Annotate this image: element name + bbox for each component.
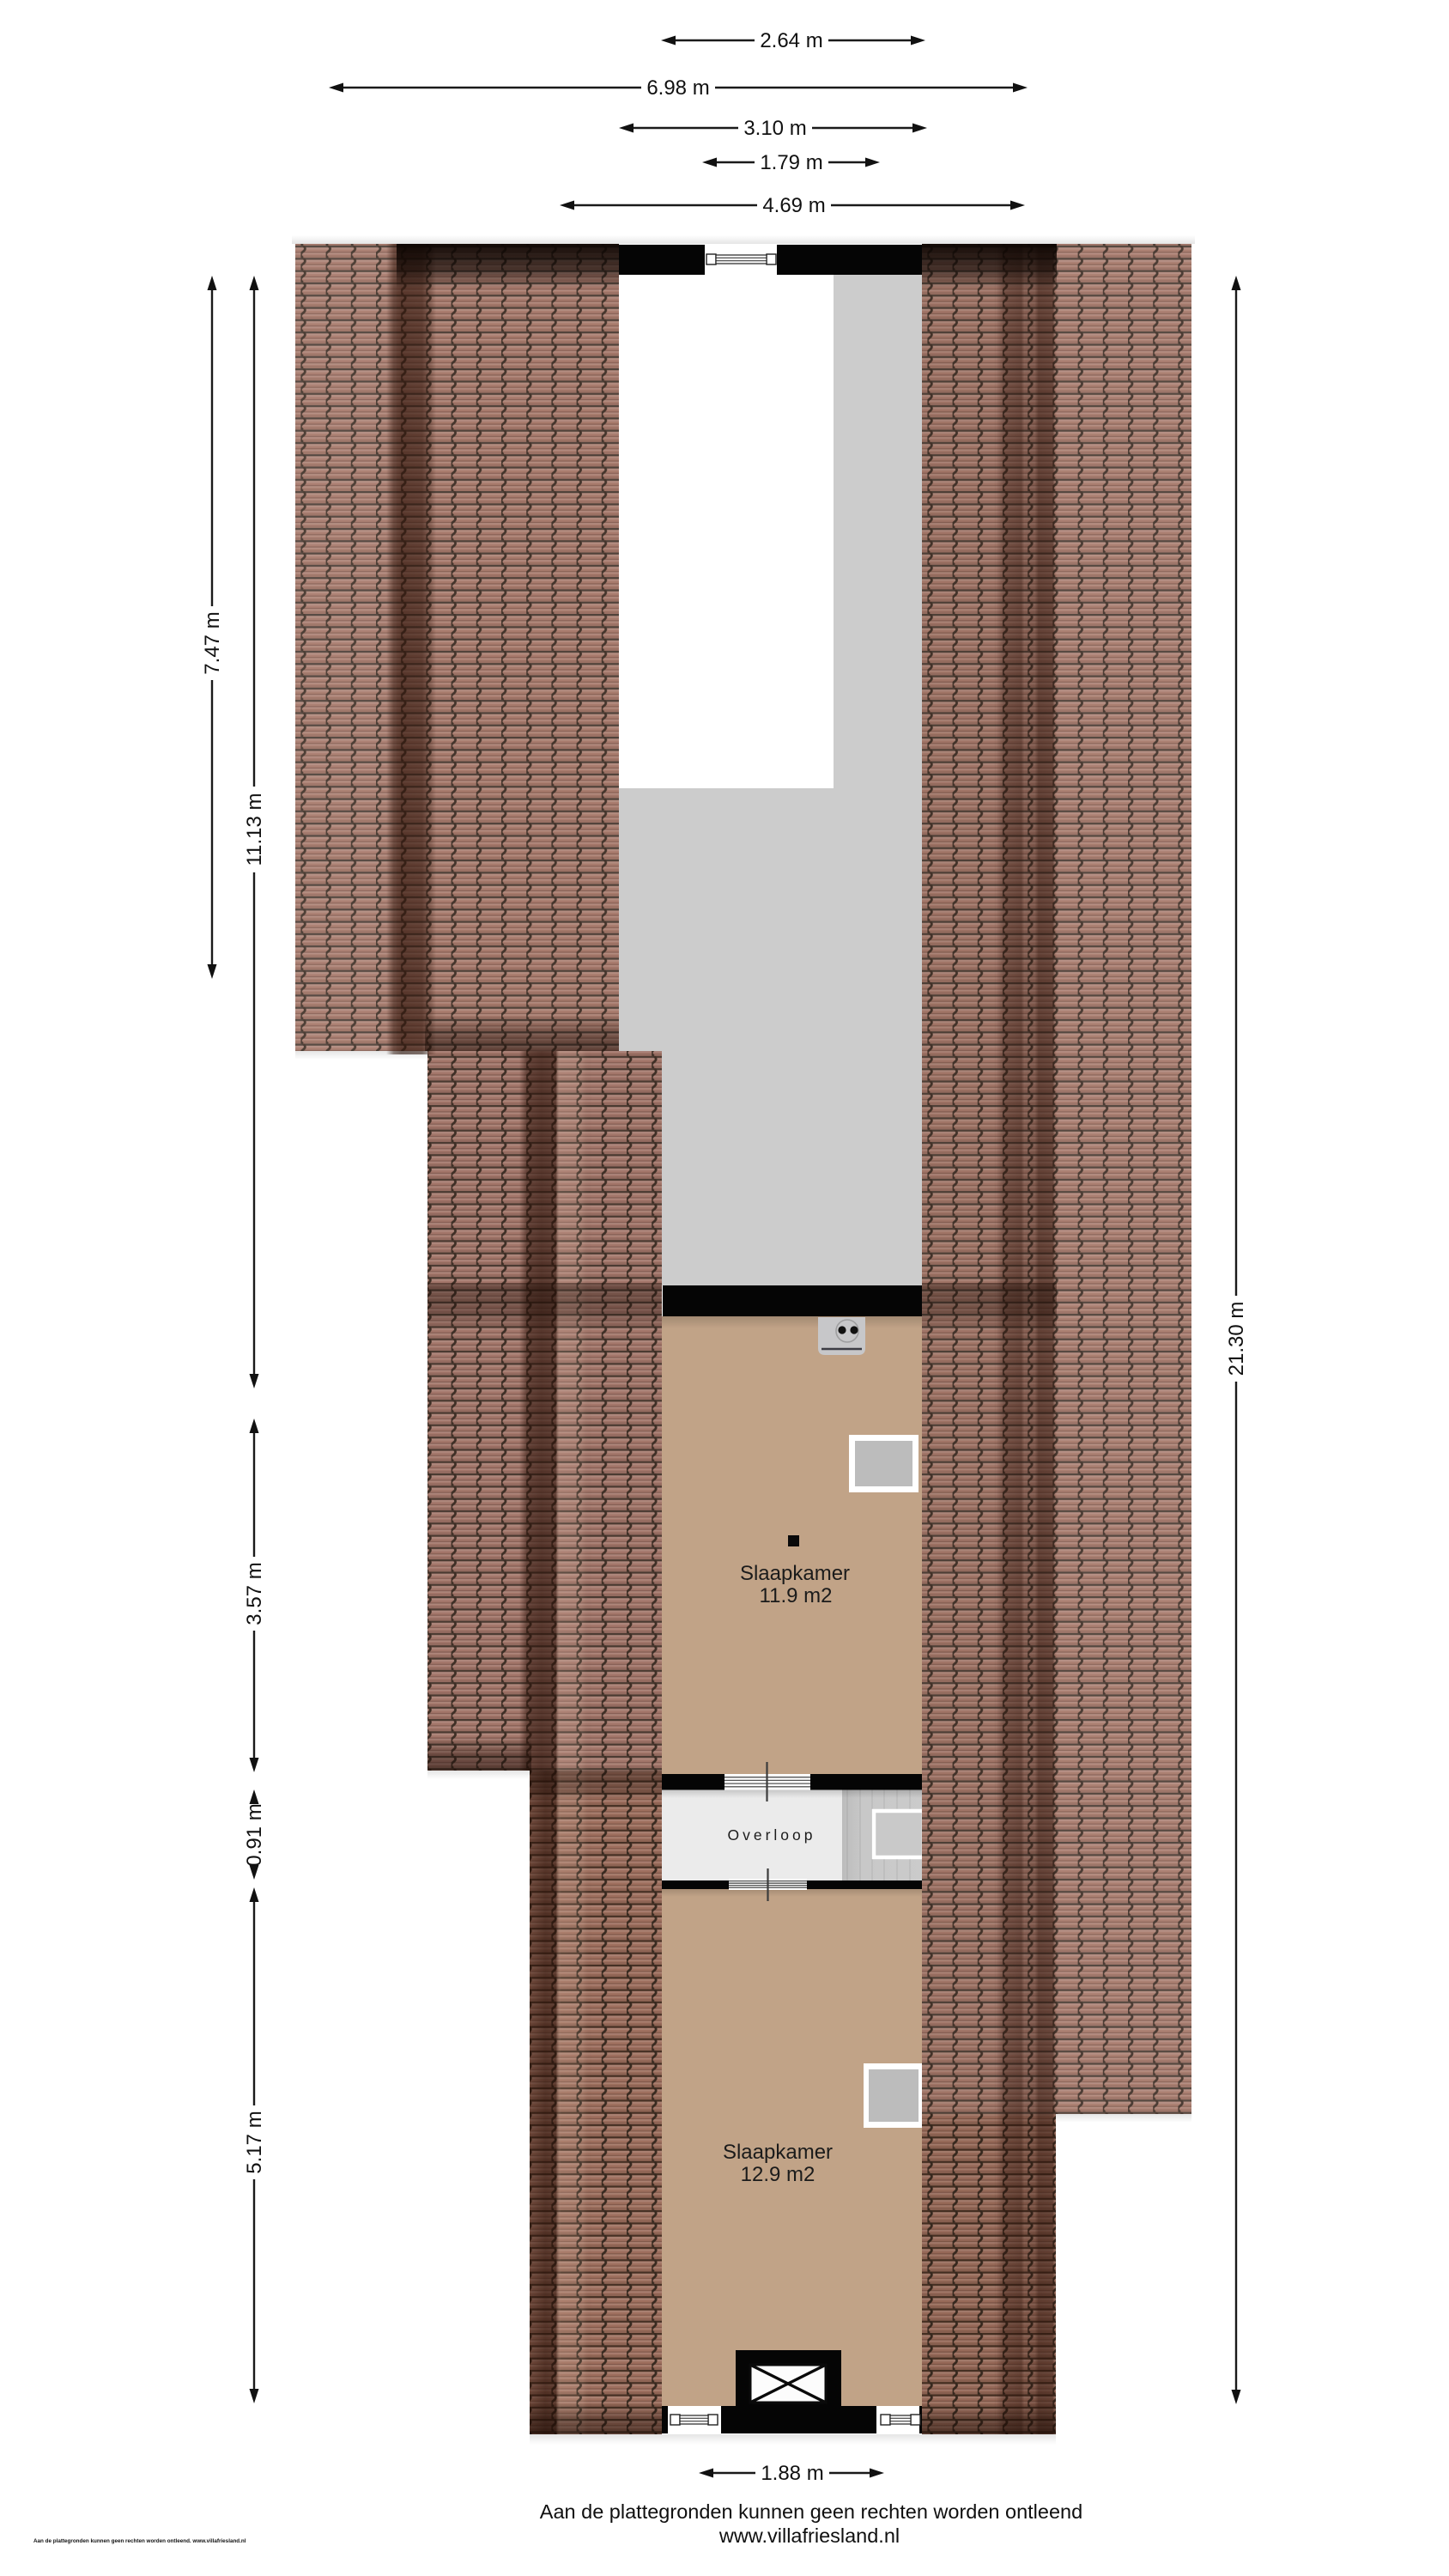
svg-text:7.47 m: 7.47 m (201, 611, 224, 674)
svg-text:www.villafriesland.nl: www.villafriesland.nl (718, 2524, 900, 2547)
svg-text:21.30 m: 21.30 m (1225, 1302, 1248, 1376)
svg-text:Aan de plattegronden kunnen ge: Aan de plattegronden kunnen geen rechten… (540, 2500, 1082, 2523)
svg-text:6.98 m: 6.98 m (646, 76, 709, 100)
svg-text:1.79 m: 1.79 m (760, 151, 822, 174)
svg-text:5.17 m: 5.17 m (243, 2111, 266, 2173)
svg-text:Slaapkamer: Slaapkamer (740, 1562, 850, 1585)
svg-text:Aan de plattegronden kunnen ge: Aan de plattegronden kunnen geen rechten… (33, 2538, 246, 2544)
svg-text:Slaapkamer: Slaapkamer (723, 2141, 833, 2164)
svg-text:11.13 m: 11.13 m (243, 793, 266, 866)
svg-text:3.57 m: 3.57 m (243, 1562, 266, 1625)
svg-text:3.10 m: 3.10 m (743, 117, 806, 140)
svg-text:0.91 m: 0.91 m (243, 1803, 266, 1866)
svg-text:1.88 m: 1.88 m (761, 2462, 823, 2485)
svg-text:Overloop: Overloop (727, 1826, 815, 1844)
svg-text:12.9 m2: 12.9 m2 (741, 2163, 815, 2186)
svg-text:4.69 m: 4.69 m (762, 194, 825, 217)
svg-text:11.9 m2: 11.9 m2 (760, 1584, 833, 1607)
svg-text:2.64 m: 2.64 m (760, 29, 822, 52)
